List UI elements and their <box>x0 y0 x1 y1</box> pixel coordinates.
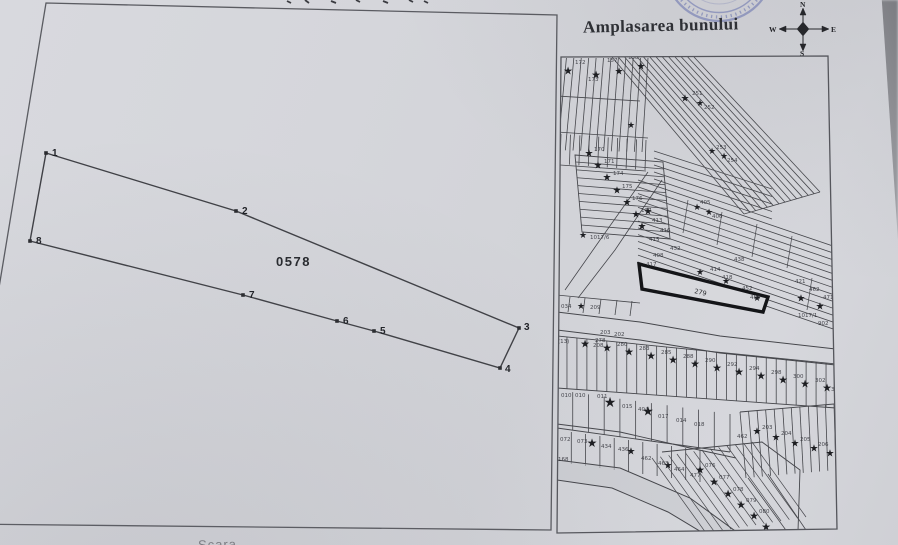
svg-text:477: 477 <box>690 473 701 479</box>
svg-text:2: 2 <box>242 206 248 217</box>
svg-text:015: 015 <box>622 404 633 410</box>
svg-text:7: 7 <box>249 290 255 301</box>
svg-text:★: ★ <box>816 302 825 313</box>
svg-text:404: 404 <box>638 407 649 413</box>
svg-text:★: ★ <box>696 268 704 278</box>
svg-text:292: 292 <box>727 362 738 368</box>
svg-text:278: 278 <box>595 338 606 344</box>
svg-text:★: ★ <box>580 338 590 351</box>
svg-text:6: 6 <box>343 316 349 327</box>
svg-text:017: 017 <box>658 414 669 420</box>
svg-text:★: ★ <box>638 222 647 233</box>
svg-text:290: 290 <box>705 358 716 364</box>
svg-text:280: 280 <box>617 342 628 348</box>
svg-text:★: ★ <box>753 427 762 438</box>
svg-text:463: 463 <box>658 461 669 467</box>
svg-text:406: 406 <box>712 214 723 220</box>
map-title: Amplasarea bunului <box>583 14 739 37</box>
svg-text:018: 018 <box>694 422 705 428</box>
svg-text:416: 416 <box>660 228 671 234</box>
svg-text:N: N <box>800 0 806 9</box>
svg-text:288: 288 <box>683 354 694 360</box>
svg-text:462: 462 <box>809 287 820 293</box>
svg-text:452: 452 <box>742 286 753 292</box>
svg-text:174: 174 <box>613 171 624 177</box>
svg-text:★: ★ <box>696 99 704 109</box>
scanned-document-photo: 12345678★★★★★★★★★★★★★★★★★★★★★★★★★★★★★★★★… <box>0 0 898 545</box>
svg-text:073: 073 <box>577 439 588 445</box>
svg-text:205: 205 <box>800 437 811 443</box>
svg-text:(13): (13) <box>558 339 569 345</box>
svg-text:★: ★ <box>761 521 771 534</box>
svg-text:204: 204 <box>781 431 792 437</box>
svg-text:283: 283 <box>639 346 650 352</box>
svg-text:★: ★ <box>637 62 646 73</box>
cadastral-drawing: 12345678★★★★★★★★★★★★★★★★★★★★★★★★★★★★★★★★… <box>0 0 898 545</box>
svg-text:★: ★ <box>563 65 573 78</box>
svg-text:177: 177 <box>641 208 652 214</box>
svg-text:176: 176 <box>632 196 643 202</box>
scale-caption-partial: Scara <box>198 537 237 545</box>
svg-text:★: ★ <box>579 231 587 241</box>
svg-text:★: ★ <box>603 173 612 184</box>
svg-text:300: 300 <box>793 374 804 380</box>
svg-text:★: ★ <box>627 121 635 131</box>
svg-text:455: 455 <box>750 295 761 301</box>
svg-text:011: 011 <box>597 394 608 400</box>
svg-text:W: W <box>769 25 777 34</box>
svg-text:462: 462 <box>641 456 652 462</box>
svg-text:3: 3 <box>524 322 530 333</box>
svg-text:254: 254 <box>727 158 738 164</box>
svg-text:206: 206 <box>818 442 829 448</box>
svg-text:★: ★ <box>594 161 603 172</box>
map-clipped-group: ★★★★★★★★★★★★★★★★★★★★★★★★★★★★★★★★★★★★★★★★… <box>550 55 842 534</box>
svg-text:★: ★ <box>587 436 598 450</box>
svg-text:★: ★ <box>615 67 624 78</box>
svg-text:★: ★ <box>613 186 622 197</box>
svg-text:209: 209 <box>590 305 601 311</box>
svg-text:302: 302 <box>815 378 826 384</box>
svg-text:★: ★ <box>772 433 781 444</box>
svg-text:172: 172 <box>575 60 586 66</box>
svg-text:413: 413 <box>652 218 663 224</box>
svg-text:E: E <box>831 25 836 34</box>
svg-text:★: ★ <box>681 94 690 105</box>
svg-text:034: 034 <box>561 304 572 310</box>
svg-text:170: 170 <box>594 147 605 153</box>
svg-text:★: ★ <box>749 510 759 523</box>
svg-text:072: 072 <box>560 437 571 443</box>
svg-text:★: ★ <box>577 302 585 312</box>
svg-text:421: 421 <box>795 279 806 285</box>
svg-text:158: 158 <box>628 55 639 61</box>
svg-text:408: 408 <box>653 253 664 259</box>
svg-text:1017/1: 1017/1 <box>798 313 817 319</box>
svg-text:079: 079 <box>746 498 757 504</box>
svg-text:298: 298 <box>771 370 782 376</box>
svg-text:157: 157 <box>607 58 618 64</box>
svg-text:★: ★ <box>708 147 716 157</box>
svg-text:★: ★ <box>632 210 641 221</box>
svg-text:S: S <box>800 49 804 58</box>
svg-text:4: 4 <box>505 364 511 375</box>
svg-text:168: 168 <box>558 457 569 463</box>
svg-text:173: 173 <box>588 77 599 83</box>
svg-text:078: 078 <box>733 487 744 493</box>
svg-text:251: 251 <box>692 91 703 97</box>
svg-text:436: 436 <box>618 447 629 453</box>
svg-text:438: 438 <box>734 257 745 263</box>
svg-text:294: 294 <box>749 366 760 372</box>
svg-text:902: 902 <box>818 321 829 327</box>
svg-text:★: ★ <box>585 149 594 160</box>
parcel-number-label: 0578 <box>276 254 311 269</box>
svg-text:★: ★ <box>791 439 800 450</box>
svg-text:5: 5 <box>380 326 386 337</box>
svg-text:175: 175 <box>622 184 633 190</box>
svg-text:★: ★ <box>736 499 746 512</box>
svg-text:202: 202 <box>614 332 625 338</box>
svg-text:010: 010 <box>575 393 586 399</box>
svg-text:080: 080 <box>759 509 770 515</box>
svg-text:417: 417 <box>646 262 657 268</box>
svg-text:171: 171 <box>604 159 615 165</box>
svg-text:★: ★ <box>826 449 835 460</box>
svg-text:077: 077 <box>719 475 730 481</box>
svg-text:014: 014 <box>676 418 687 424</box>
svg-text:432: 432 <box>670 246 681 252</box>
svg-text:203: 203 <box>762 425 773 431</box>
svg-text:434: 434 <box>601 444 612 450</box>
svg-text:★: ★ <box>709 476 719 489</box>
svg-text:252: 252 <box>704 105 715 111</box>
svg-text:414: 414 <box>710 267 721 273</box>
svg-text:010: 010 <box>561 393 572 399</box>
svg-text:076: 076 <box>705 463 716 469</box>
svg-text:462: 462 <box>737 434 748 440</box>
svg-text:405: 405 <box>700 200 711 206</box>
svg-text:415: 415 <box>649 237 660 243</box>
svg-text:418: 418 <box>722 275 733 281</box>
svg-text:★: ★ <box>797 294 806 305</box>
svg-text:464: 464 <box>674 467 685 473</box>
svg-text:203: 203 <box>600 330 611 336</box>
svg-text:253: 253 <box>716 145 727 151</box>
svg-text:★: ★ <box>623 198 632 209</box>
svg-text:285: 285 <box>661 350 672 356</box>
svg-text:1: 1 <box>52 148 58 159</box>
svg-text:1017/6: 1017/6 <box>590 235 610 241</box>
svg-text:304: 304 <box>831 387 842 393</box>
svg-text:★: ★ <box>723 488 733 501</box>
svg-text:8: 8 <box>36 236 42 247</box>
